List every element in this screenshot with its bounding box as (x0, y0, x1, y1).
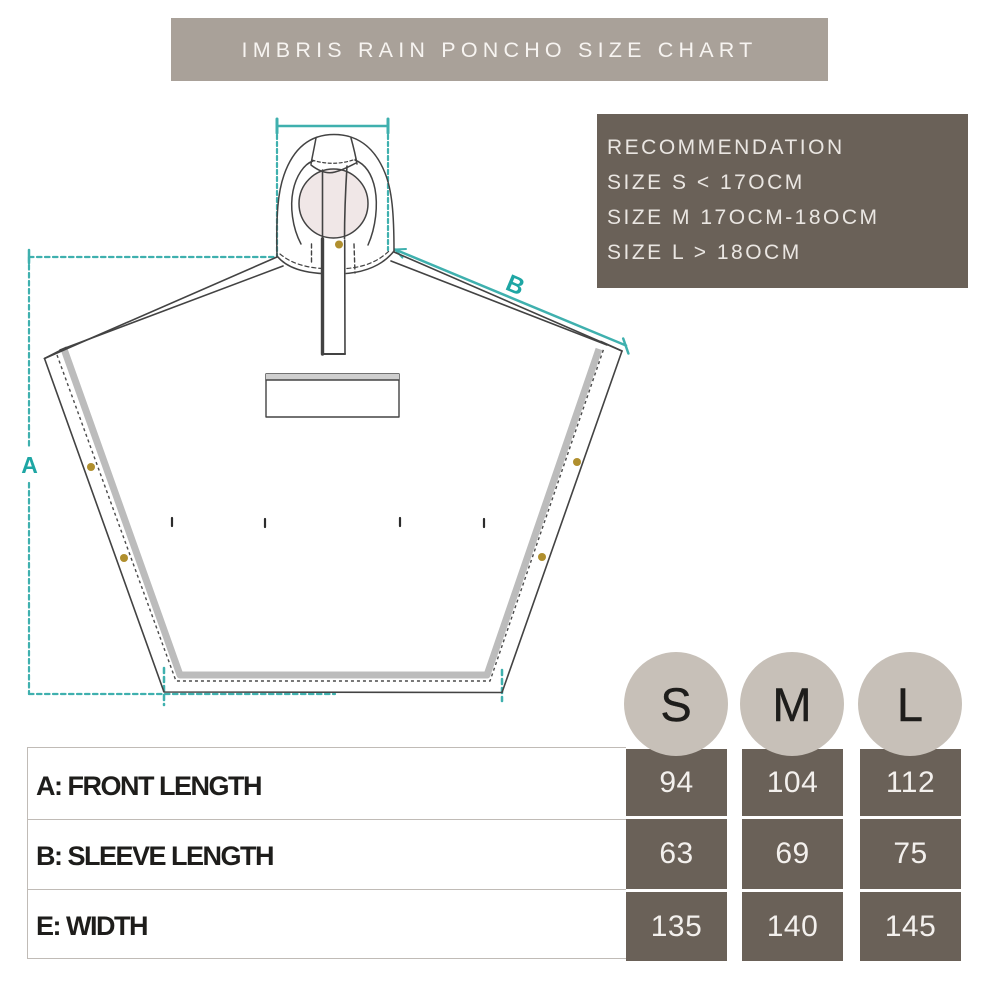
svg-text:A: A (21, 452, 38, 478)
